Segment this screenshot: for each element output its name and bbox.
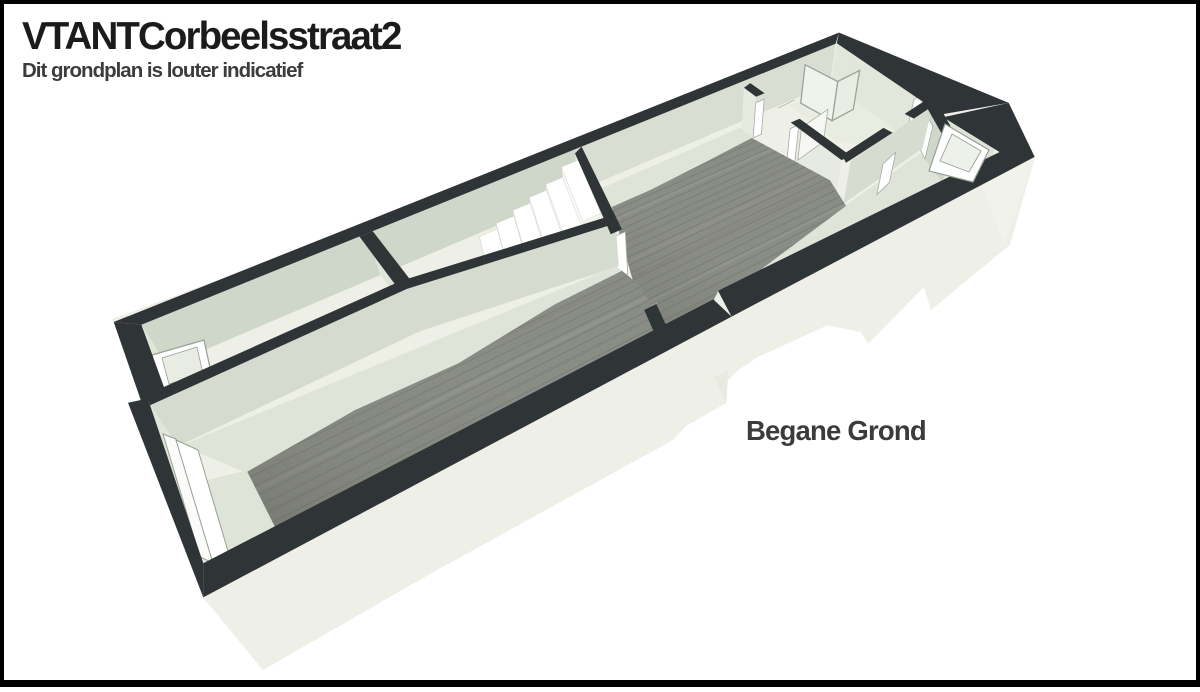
svg-text:VTANTCorbeelsstraat2: VTANTCorbeelsstraat2 <box>22 15 401 58</box>
svg-text:Dit grondplan is louter indica: Dit grondplan is louter indicatief <box>22 59 304 82</box>
svg-text:Begane Grond: Begane Grond <box>746 415 926 446</box>
